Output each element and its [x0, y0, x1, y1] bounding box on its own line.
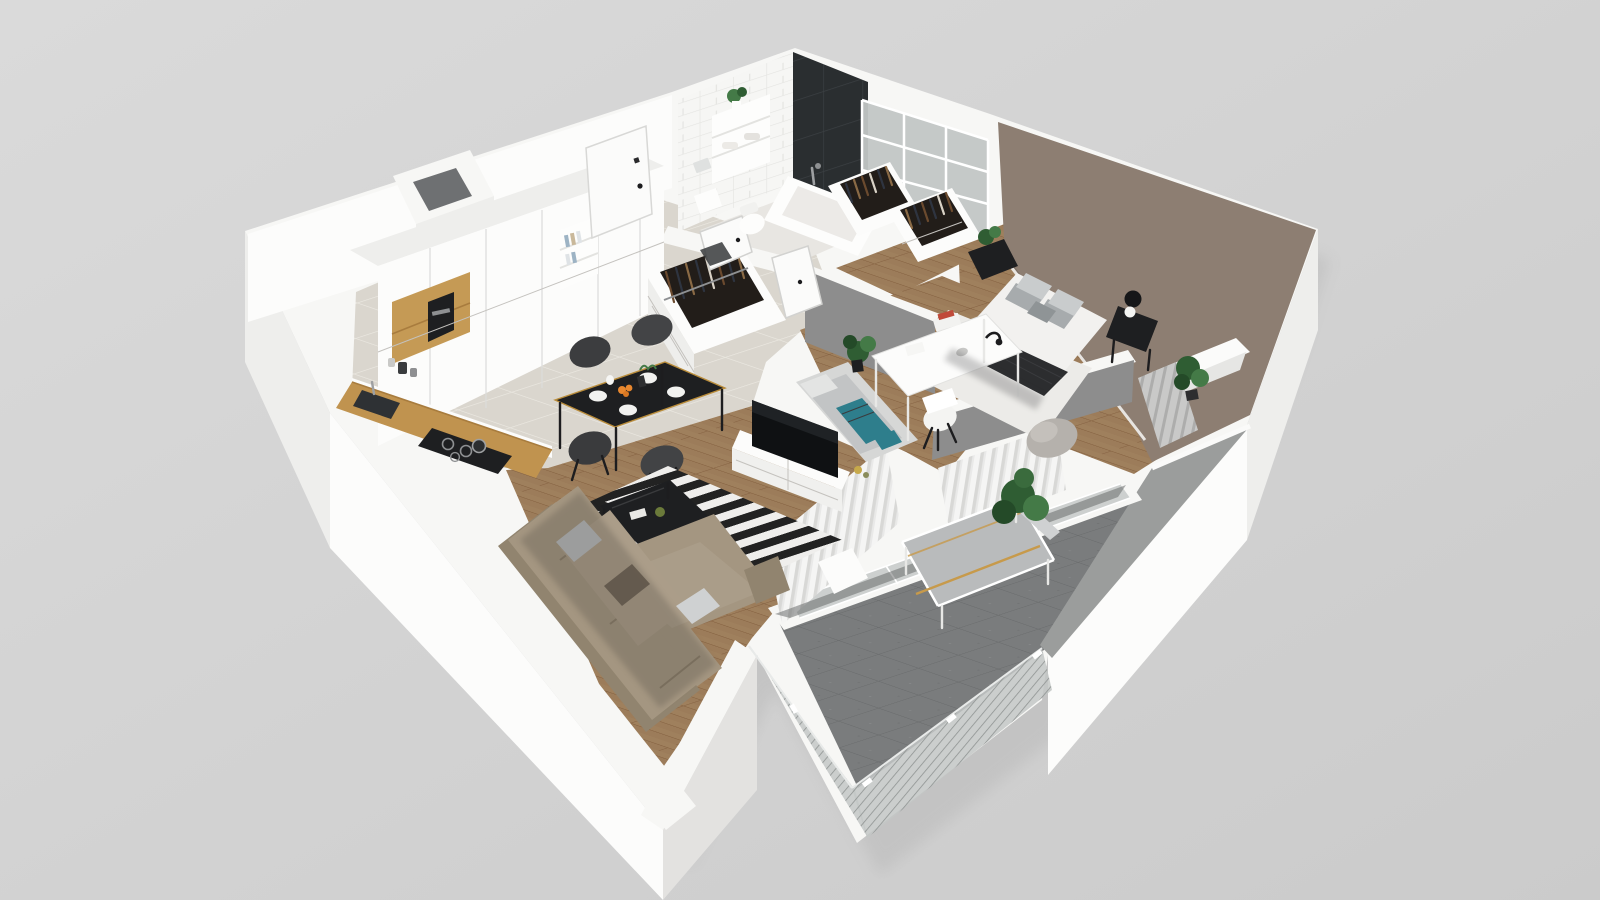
render-canvas — [0, 0, 1600, 900]
apartment-render — [0, 0, 1600, 900]
